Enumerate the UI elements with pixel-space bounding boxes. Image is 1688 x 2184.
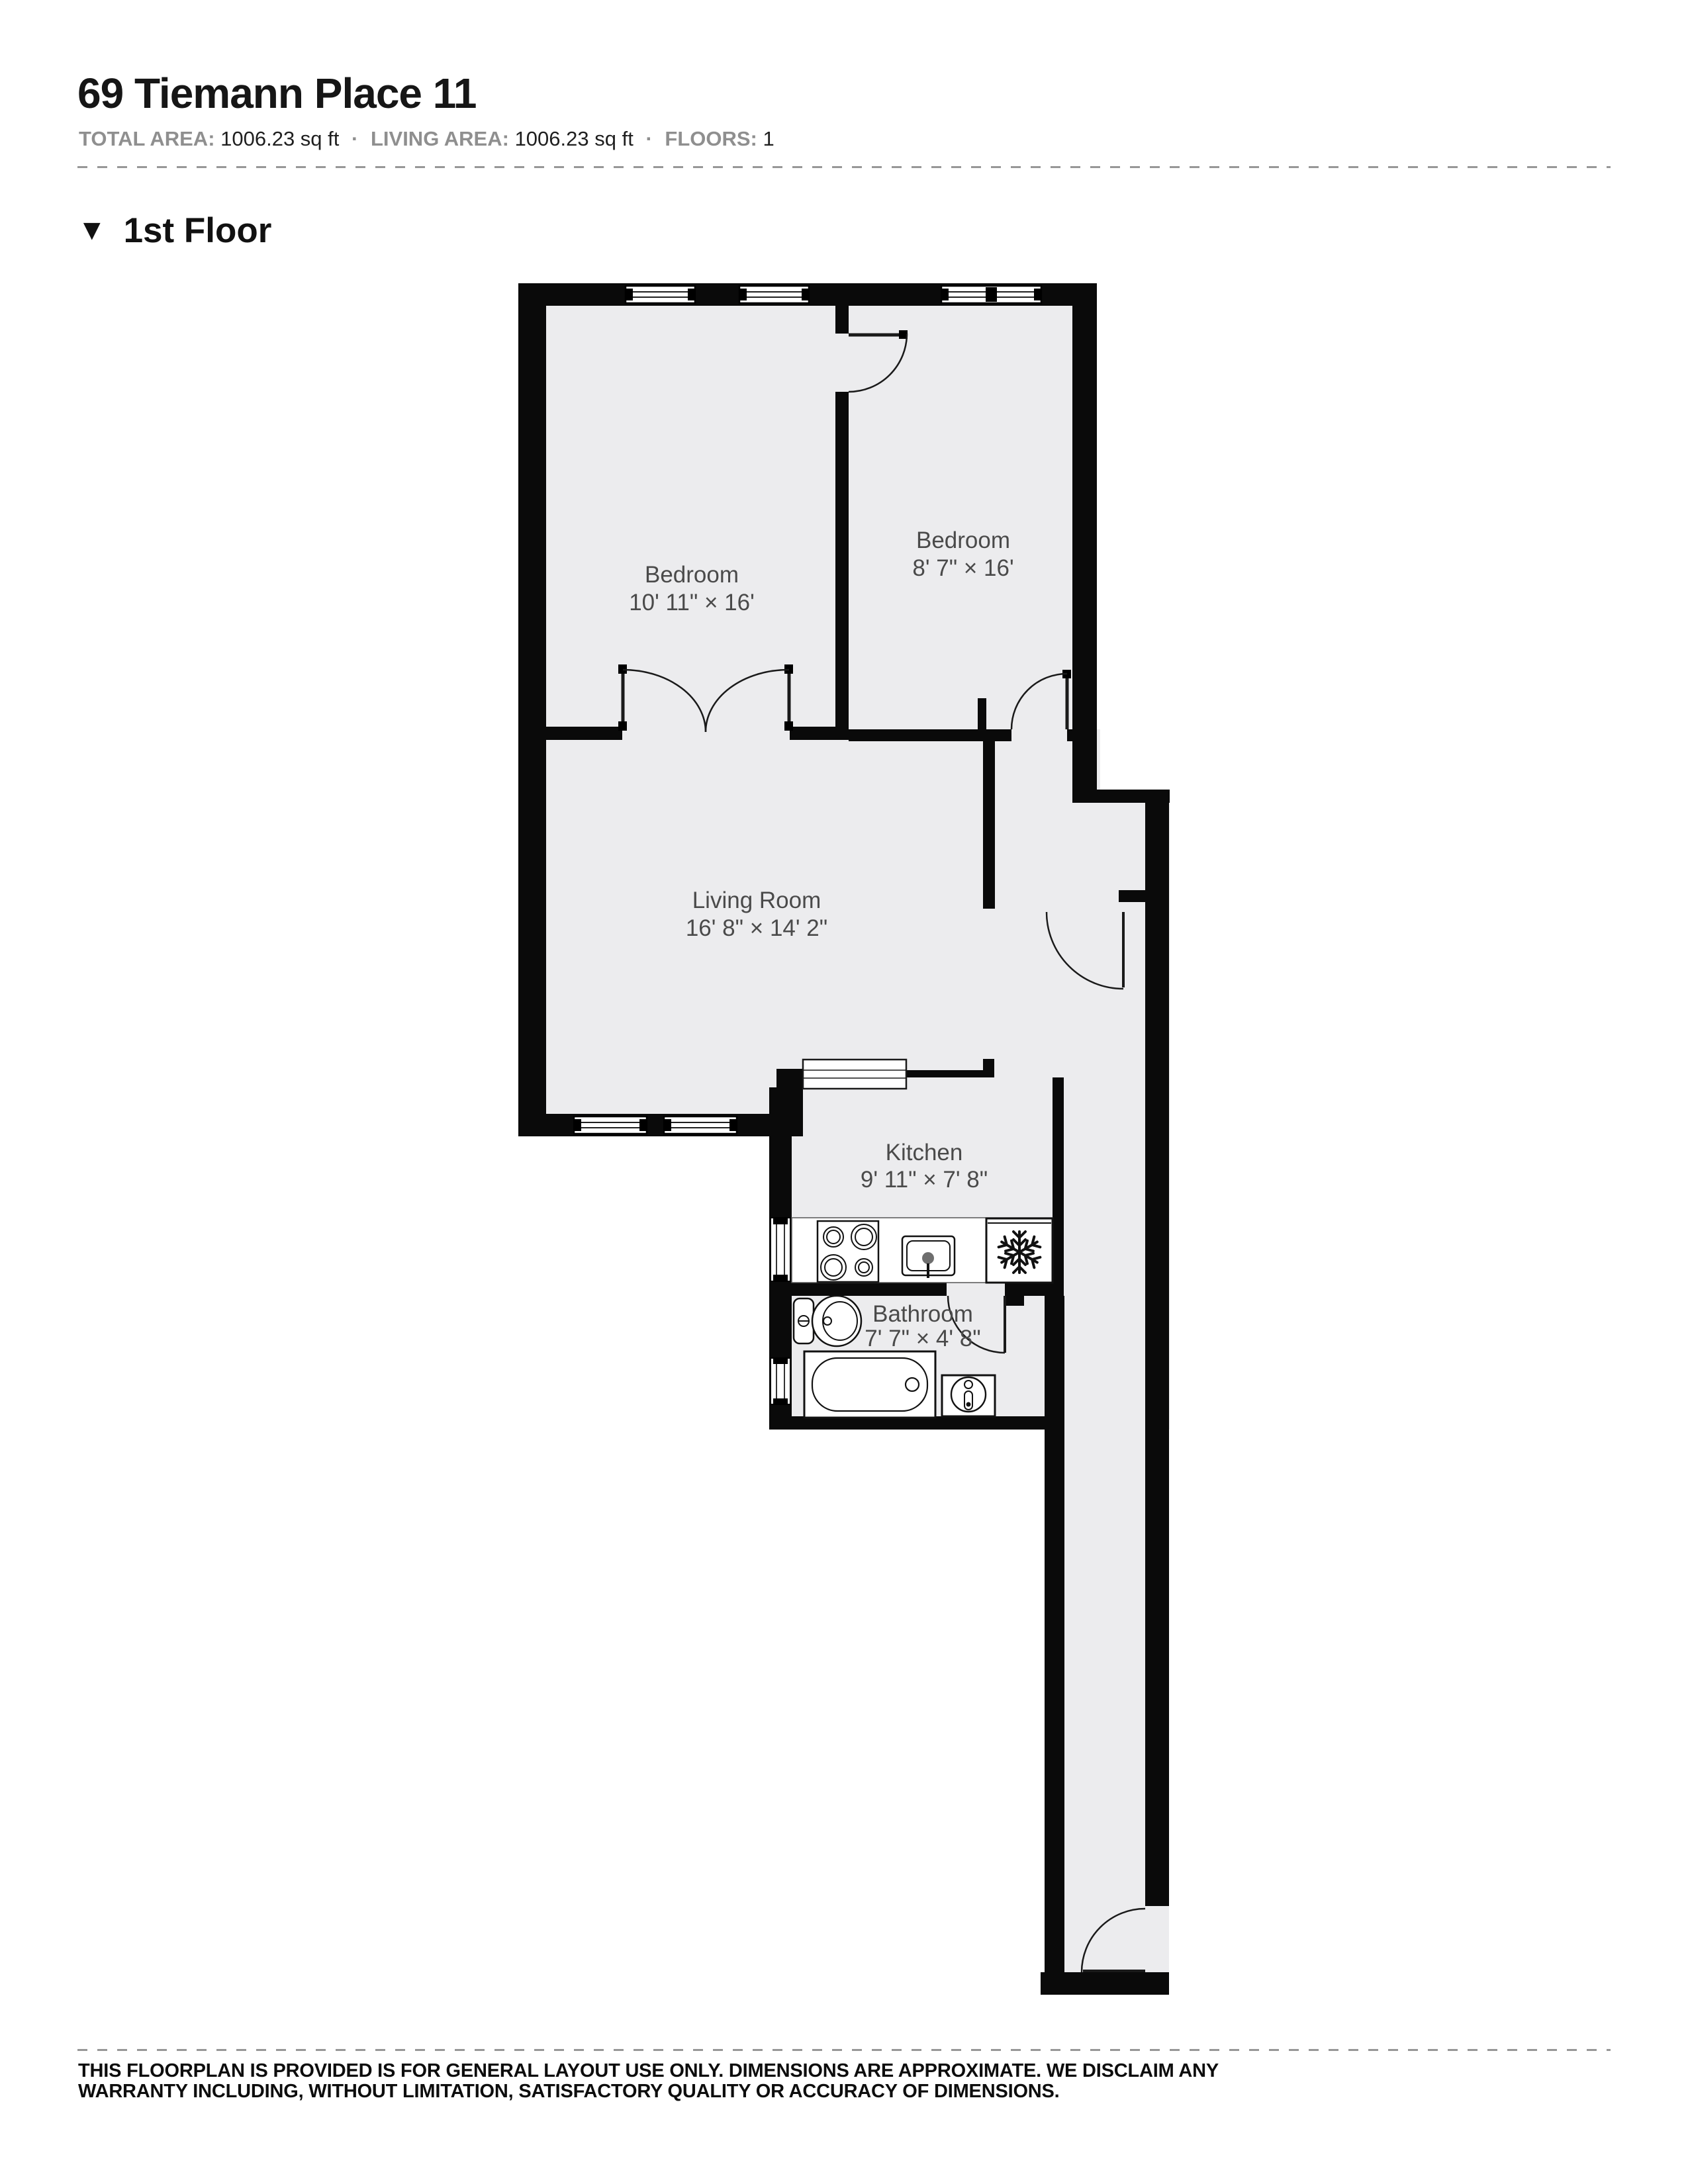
stove-icon bbox=[818, 1221, 878, 1282]
window-living-b bbox=[664, 1116, 737, 1134]
wall-bedroom-divider-top bbox=[835, 306, 849, 334]
wall-bedroom1-bottom-left bbox=[546, 727, 622, 740]
fridge-snowflake-icon bbox=[986, 1218, 1053, 1283]
disclaimer-text: THIS FLOORPLAN IS PROVIDED IS FOR GENERA… bbox=[78, 2061, 1219, 2102]
wall-bedroom1-bottom-right bbox=[790, 727, 835, 740]
wall-kitchen-right bbox=[1053, 1077, 1064, 1286]
wall-living-hall-divider bbox=[983, 741, 995, 909]
wall-bedroom-divider bbox=[835, 392, 849, 740]
room-dims: 7' 7" × 4' 8" bbox=[865, 1326, 980, 1351]
window-kitchen-box bbox=[803, 1060, 906, 1089]
wall-kitchen-stub bbox=[983, 1059, 994, 1077]
bathtub-icon bbox=[804, 1351, 935, 1418]
floor-bedrooms bbox=[536, 295, 1086, 741]
window-bedroom1-b bbox=[739, 286, 809, 303]
floor-vestibule bbox=[986, 729, 1100, 1430]
wall-jog-top bbox=[1097, 790, 1170, 803]
wall-bedroom2-bottom-left bbox=[849, 729, 1011, 741]
floorplan-page: 69 Tiemann Place 11 TOTAL AREA: 1006.23 … bbox=[0, 0, 1688, 2184]
room-label: Bathroom bbox=[872, 1301, 973, 1327]
room-label: Living Room bbox=[692, 887, 821, 913]
window-bedroom2-double bbox=[941, 286, 1041, 303]
disclaimer-line-2: WARRANTY INCLUDING, WITHOUT LIMITATION, … bbox=[78, 2081, 1219, 2102]
toilet-icon bbox=[794, 1296, 861, 1346]
wall-living-bottom bbox=[518, 1114, 803, 1136]
wall-left bbox=[518, 283, 546, 1136]
kitchen-sink-icon bbox=[902, 1236, 955, 1278]
wall-hall-bottom bbox=[1041, 1972, 1169, 1995]
divider-dashed-bottom bbox=[77, 2049, 1611, 2051]
room-dims: 8' 7" × 16' bbox=[912, 555, 1013, 581]
room-label: Bedroom bbox=[645, 562, 739, 588]
bathroom-sink-icon bbox=[942, 1375, 995, 1416]
wall-niche-partition bbox=[1119, 890, 1147, 902]
wall-kitchen-bath-left bbox=[769, 1283, 947, 1296]
snowflake-icon bbox=[999, 1232, 1041, 1273]
room-label: Bedroom bbox=[916, 527, 1010, 553]
wall-hall-left bbox=[1045, 1296, 1064, 1995]
wall-right-bedrooms bbox=[1072, 283, 1097, 803]
room-dims: 10' 11" × 16' bbox=[629, 590, 755, 615]
wall-kitchen-top-thin bbox=[898, 1070, 988, 1077]
kitchen-fixtures bbox=[792, 1218, 1053, 1283]
room-label: Kitchen bbox=[886, 1140, 963, 1165]
window-bedroom1-a bbox=[626, 286, 695, 303]
floor-plan-drawing: Bedroom 10' 11" × 16' Bedroom 8' 7" × 16… bbox=[0, 0, 1688, 2184]
room-dims: 16' 8" × 14' 2" bbox=[686, 915, 827, 941]
wall-bath-door-jamb bbox=[1005, 1283, 1024, 1306]
wall-hall-right bbox=[1145, 803, 1169, 1906]
window-bath-left bbox=[771, 1358, 790, 1404]
wall-bedroom2-bottom-right bbox=[1067, 729, 1097, 741]
room-bathroom: Bathroom 7' 7" × 4' 8" bbox=[865, 1301, 980, 1351]
window-kitchen-left bbox=[771, 1218, 790, 1281]
wall-bedroom2-stub bbox=[978, 698, 986, 729]
disclaimer-line-1: THIS FLOORPLAN IS PROVIDED IS FOR GENERA… bbox=[78, 2061, 1219, 2081]
room-dims: 9' 11" × 7' 8" bbox=[861, 1167, 988, 1193]
window-living-a bbox=[574, 1116, 647, 1134]
